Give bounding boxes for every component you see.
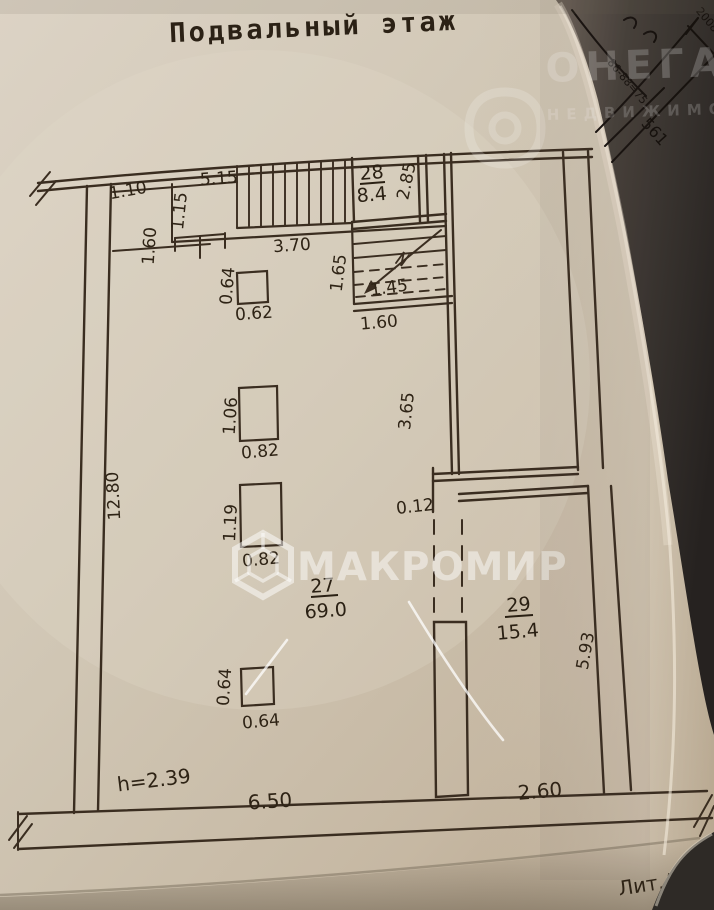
room-area: 15.4 xyxy=(496,619,540,645)
photographed-floorplan-page: Подвальный этаж 1.10 1.60 1.15 5.15 3.70… xyxy=(0,0,714,910)
room-28-label: 28 8.4 xyxy=(356,161,388,207)
dim-label: 0.12 xyxy=(395,495,435,519)
floorplan-canvas: Подвальный этаж 1.10 1.60 1.15 5.15 3.70… xyxy=(0,0,714,910)
room-number: 29 xyxy=(506,593,532,617)
dim-label: 1.60 xyxy=(139,226,162,265)
dim-label: 0.64 xyxy=(241,710,280,733)
dim-label: 12.80 xyxy=(103,471,126,521)
makromir-watermark-text: МАКРОМИР xyxy=(297,545,568,590)
dim-label: 3.70 xyxy=(272,235,311,258)
room-area: 8.4 xyxy=(356,183,388,208)
dim-label: 0.82 xyxy=(240,440,279,463)
dim-label: 0.64 xyxy=(216,266,239,305)
dim-label: 1.15 xyxy=(168,191,192,231)
dim-label: 5.15 xyxy=(199,168,238,191)
dim-label: 3.65 xyxy=(395,391,419,431)
dim-label: 0.62 xyxy=(234,303,273,326)
dim-label: 1.19 xyxy=(220,504,242,543)
dim-label: 6.50 xyxy=(247,787,293,814)
room-area: 69.0 xyxy=(304,599,348,624)
dim-label: 1.60 xyxy=(359,311,398,334)
dim-label: 0.64 xyxy=(214,667,237,706)
dim-label: 1.06 xyxy=(220,396,243,435)
